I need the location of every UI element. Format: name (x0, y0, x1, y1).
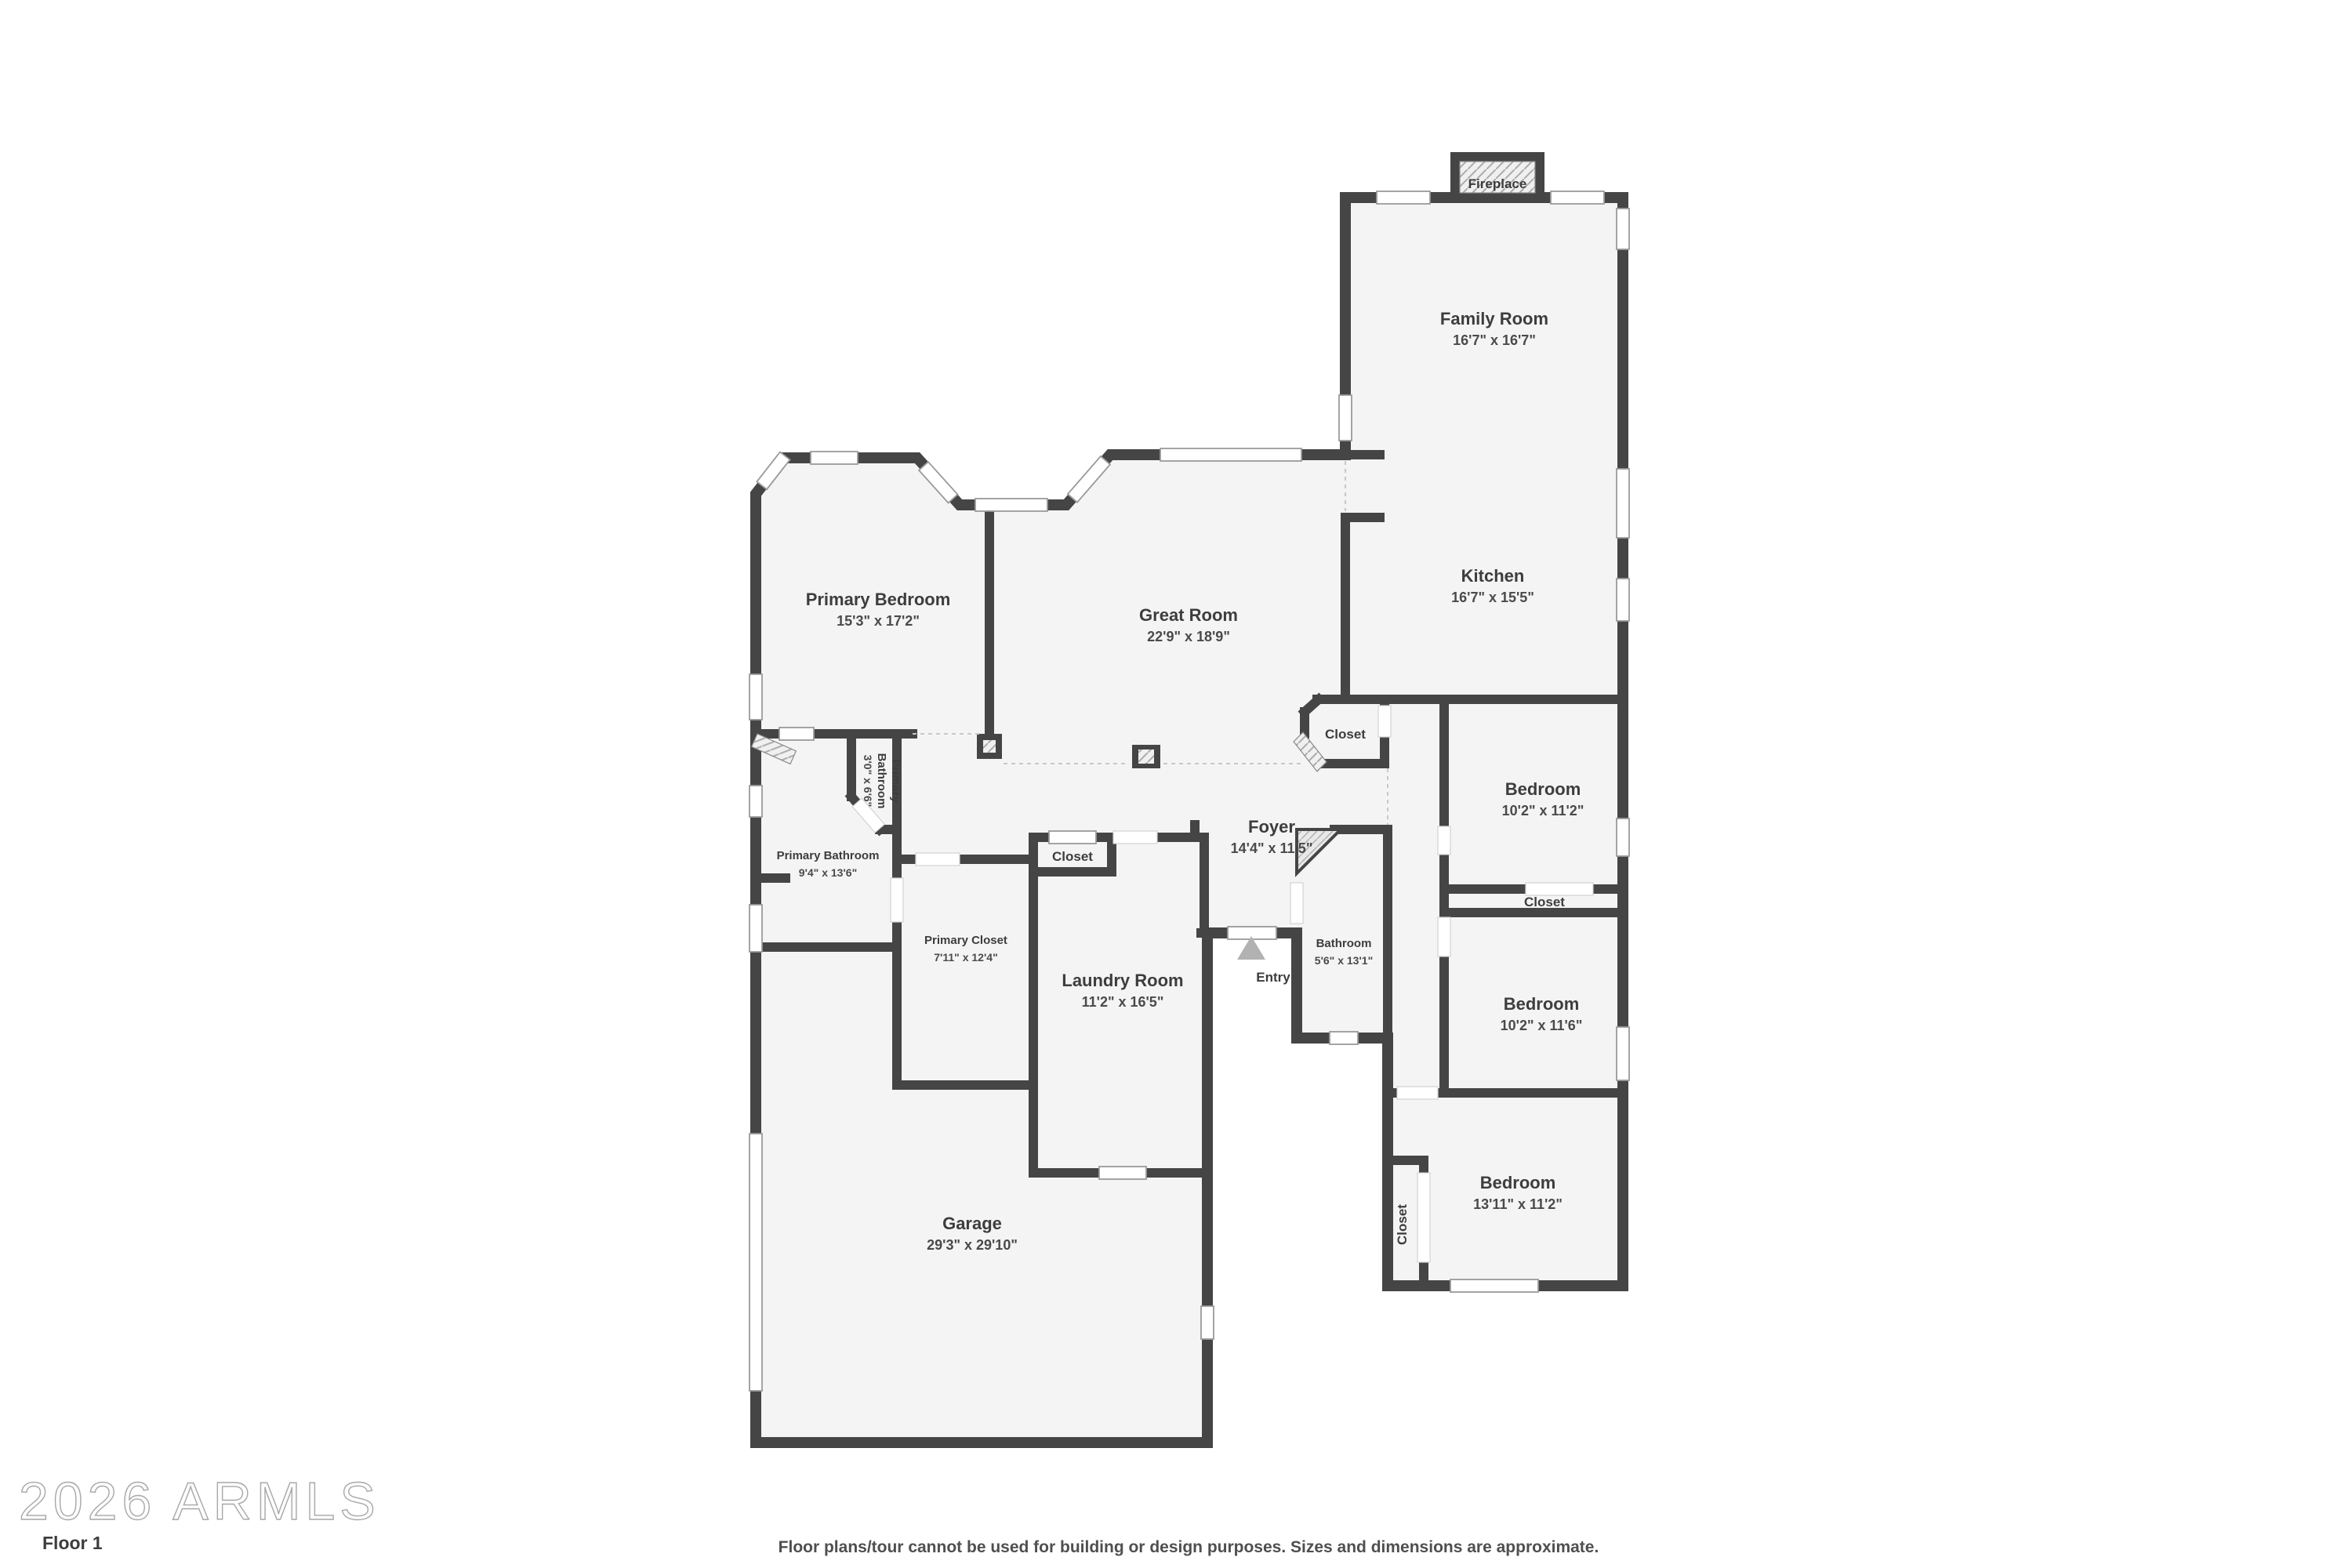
room-label-closet-bedroom: Closet (1395, 1204, 1410, 1245)
room-label-bedroom-middle: Bedroom (1504, 994, 1580, 1014)
watermark: 2026 ARMLS (19, 1472, 380, 1531)
room-label-foyer: Foyer (1248, 817, 1295, 837)
room-label-primary-bathroom: Primary Bathroom (777, 849, 880, 862)
column-post-left (977, 734, 1002, 759)
room-label-kitchen: Kitchen (1461, 566, 1525, 586)
room-label-great-room: Great Room (1139, 605, 1238, 625)
floorplan-canvas: Fireplace Family Room 16'7" x 16'7" Kitc… (0, 0, 2352, 1568)
room-label-bedroom-bottom: Bedroom (1480, 1173, 1556, 1192)
room-dims-kitchen: 16'7" x 15'5" (1451, 590, 1534, 605)
room-dims-primary-water-closet: 3'0" x 6'6" (862, 755, 874, 808)
room-label-primary-closet: Primary Closet (924, 934, 1007, 947)
room-label-family-room: Family Room (1440, 309, 1548, 328)
room-label-closet-laundry: Closet (1052, 849, 1093, 864)
disclaimer-text: Floor plans/tour cannot be used for buil… (779, 1538, 1599, 1556)
room-label-primary-bedroom: Primary Bedroom (806, 590, 951, 609)
room-dims-primary-closet: 7'11" x 12'4" (934, 951, 997, 964)
room-label-garage: Garage (942, 1214, 1002, 1233)
floor-label: Floor 1 (42, 1533, 103, 1553)
room-dims-great-room: 22'9" x 18'9" (1147, 629, 1230, 644)
room-label-bedroom-top: Bedroom (1505, 779, 1581, 799)
room-dims-laundry: 11'2" x 16'5" (1082, 994, 1164, 1010)
fireplace-label: Fireplace (1468, 176, 1527, 191)
room-dims-bedroom-top: 10'2" x 11'2" (1502, 803, 1584, 818)
room-dims-primary-bedroom: 15'3" x 17'2" (837, 613, 920, 629)
room-label-primary-water-closet-2: Bathroom (875, 753, 888, 809)
room-label-laundry: Laundry Room (1062, 971, 1183, 990)
room-dims-family-room: 16'7" x 16'7" (1453, 332, 1536, 348)
room-label-primary-water-closet-1: Primary (889, 759, 902, 804)
column-post-right (1132, 745, 1160, 768)
room-label-bathroom: Bathroom (1316, 937, 1372, 950)
floorplan-outline (756, 198, 1623, 1443)
footer: 2026 ARMLS Floor 1 Floor plans/tour cann… (19, 1472, 1599, 1556)
room-dims-bedroom-middle: 10'2" x 11'6" (1501, 1018, 1583, 1033)
room-label-entry: Entry (1256, 970, 1290, 985)
room-dims-foyer: 14'4" x 11'5" (1231, 840, 1313, 856)
room-dims-bedroom-bottom: 13'11" x 11'2" (1473, 1196, 1563, 1212)
room-dims-garage: 29'3" x 29'10" (927, 1237, 1018, 1253)
room-label-closet-foyer: Closet (1325, 727, 1366, 742)
room-dims-primary-bathroom: 9'4" x 13'6" (799, 866, 857, 879)
room-dims-bathroom: 5'6" x 13'1" (1315, 954, 1373, 967)
room-label-closet-hall: Closet (1524, 895, 1565, 909)
